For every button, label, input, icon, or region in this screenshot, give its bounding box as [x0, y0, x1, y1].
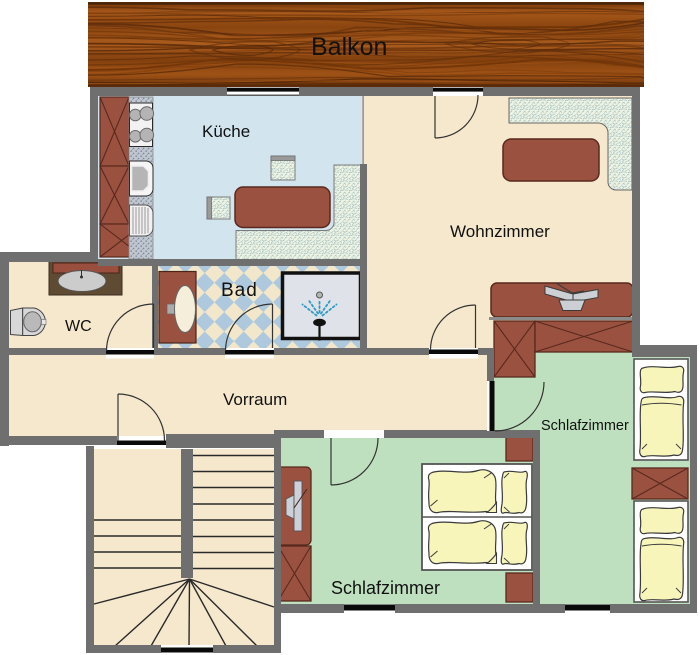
svg-text:Schlafzimmer: Schlafzimmer: [541, 418, 629, 434]
svg-text:Bad: Bad: [221, 280, 258, 301]
svg-text:Schlafzimmer: Schlafzimmer: [331, 578, 440, 598]
svg-text:Küche: Küche: [202, 122, 250, 141]
svg-text:Balkon: Balkon: [311, 33, 387, 61]
svg-text:Vorraum: Vorraum: [223, 390, 287, 409]
svg-text:Wohnzimmer: Wohnzimmer: [450, 222, 550, 241]
svg-text:WC: WC: [65, 318, 92, 335]
